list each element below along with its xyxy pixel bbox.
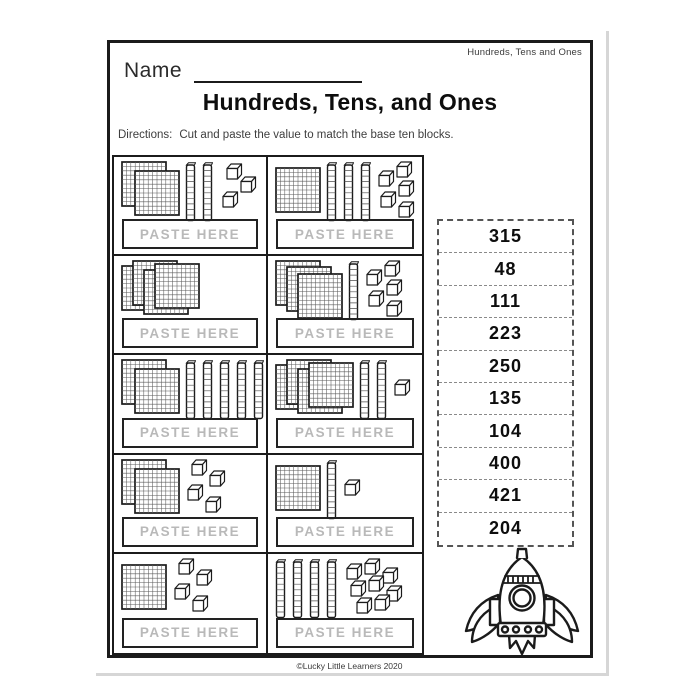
rocket-icon (448, 545, 596, 657)
ones-group (392, 359, 411, 419)
paste-here-box[interactable]: PASTE HERE (122, 618, 258, 648)
rocket-rivet (513, 627, 519, 633)
hundreds-group (121, 558, 167, 618)
base-ten-blocks (121, 459, 264, 521)
ten-rod-icon (326, 460, 337, 520)
hundreds-group (275, 359, 354, 419)
hundred-flat-icon (275, 465, 321, 511)
one-cube-icon (222, 191, 239, 208)
hundreds-group (121, 161, 180, 221)
block-cell: PASTE HERE (268, 256, 422, 355)
one-cube-icon (378, 170, 395, 187)
ones-group (172, 558, 213, 618)
paste-here-box[interactable]: PASTE HERE (276, 517, 414, 547)
ten-rod-icon (292, 559, 303, 619)
one-cube-icon (178, 558, 195, 575)
one-cube-icon (192, 595, 209, 612)
paste-here-label: PASTE HERE (140, 524, 240, 539)
rocket-window-inner (514, 590, 531, 607)
rocket-rivet (502, 627, 508, 633)
ten-rod-icon (236, 360, 247, 420)
ones-group (364, 260, 403, 320)
tens-group (359, 359, 387, 420)
paste-here-label: PASTE HERE (140, 227, 240, 242)
hundred-flat-icon (308, 362, 354, 408)
page-title: Hundreds, Tens, and Ones (110, 89, 590, 116)
rocket-flame (509, 635, 535, 654)
paste-here-box[interactable]: PASTE HERE (122, 318, 258, 348)
one-cube-icon (386, 300, 403, 317)
ten-rod-icon (359, 360, 370, 420)
ten-rod-icon (219, 360, 230, 420)
paste-here-box[interactable]: PASTE HERE (276, 219, 414, 249)
base-ten-blocks (275, 558, 420, 620)
paste-here-box[interactable]: PASTE HERE (276, 618, 414, 648)
one-cube-icon (187, 484, 204, 501)
tens-group (185, 359, 264, 420)
directions-label: Directions: (118, 129, 172, 141)
directions: Directions:Cut and paste the value to ma… (118, 129, 454, 141)
hundred-flat-icon (134, 468, 180, 514)
block-cell: PASTE HERE (114, 554, 268, 653)
paste-here-label: PASTE HERE (295, 326, 395, 341)
one-cube-icon (356, 597, 373, 614)
block-cell: PASTE HERE (268, 355, 422, 454)
paste-here-label: PASTE HERE (295, 625, 395, 640)
answer-slip[interactable]: 104 (439, 415, 572, 447)
one-cube-icon (384, 260, 401, 277)
ten-rod-icon (309, 559, 320, 619)
one-cube-icon (344, 479, 361, 496)
worksheet-page: Hundreds, Tens and Ones Name Hundreds, T… (93, 28, 606, 673)
answer-slip[interactable]: 250 (439, 351, 572, 383)
hundreds-group (275, 260, 343, 320)
one-cube-icon (380, 191, 397, 208)
one-cube-icon (205, 496, 222, 513)
hundred-flat-icon (134, 368, 180, 414)
name-label: Name (124, 59, 182, 83)
one-cube-icon (174, 583, 191, 600)
one-cube-icon (364, 558, 381, 575)
one-cube-icon (240, 176, 257, 193)
hundreds-group (275, 459, 321, 519)
block-cell: PASTE HERE (268, 455, 422, 554)
ones-group (342, 558, 403, 618)
one-cube-icon (366, 269, 383, 286)
paste-here-box[interactable]: PASTE HERE (122, 219, 258, 249)
rocket-tip (517, 549, 527, 558)
base-ten-blocks (121, 161, 264, 223)
hundred-flat-icon (275, 167, 321, 213)
hundred-flat-icon (134, 170, 180, 216)
ten-rod-icon (275, 559, 286, 619)
paste-here-label: PASTE HERE (295, 425, 395, 440)
base-ten-blocks (121, 260, 264, 322)
ten-rod-icon (348, 261, 359, 321)
paste-here-box[interactable]: PASTE HERE (276, 418, 414, 448)
answer-slip[interactable]: 421 (439, 480, 572, 512)
hundred-flat-icon (121, 564, 167, 610)
hundred-flat-icon (297, 273, 343, 319)
block-cell: PASTE HERE (114, 455, 268, 554)
copyright: ©Lucky Little Learners 2020 (93, 661, 606, 671)
ten-rod-icon (202, 360, 213, 420)
paste-here-label: PASTE HERE (295, 227, 395, 242)
one-cube-icon (368, 575, 385, 592)
one-cube-icon (394, 379, 411, 396)
tens-group (326, 161, 371, 222)
hundred-flat-icon (154, 263, 200, 309)
ten-rod-icon (185, 360, 196, 420)
tens-group (348, 260, 359, 321)
base-ten-blocks (275, 459, 420, 521)
one-cube-icon (386, 279, 403, 296)
hundreds-group (121, 459, 180, 519)
answer-slip[interactable]: 223 (439, 318, 572, 350)
one-cube-icon (346, 563, 363, 580)
directions-text: Cut and paste the value to match the bas… (179, 129, 453, 141)
name-row: Name (124, 59, 362, 83)
answer-slip[interactable]: 111 (439, 286, 572, 318)
base-ten-blocks (121, 558, 264, 620)
answer-slip[interactable]: 48 (439, 253, 572, 285)
block-cell: PASTE HERE (268, 157, 422, 256)
answer-column: 31548111223250135104400421204 (437, 219, 574, 547)
answer-slip[interactable]: 315 (439, 221, 572, 253)
paste-here-label: PASTE HERE (140, 625, 240, 640)
ten-rod-icon (253, 360, 264, 420)
ten-rod-icon (326, 559, 337, 619)
hundreds-group (121, 359, 180, 419)
rocket-rivet (525, 627, 531, 633)
base-ten-blocks (275, 161, 420, 223)
one-cube-icon (368, 290, 385, 307)
base-ten-blocks (121, 359, 264, 421)
hundreds-group (121, 260, 200, 320)
name-input-line[interactable] (194, 61, 362, 83)
page-frame: Hundreds, Tens and Ones Name Hundreds, T… (107, 40, 593, 658)
ones-group (342, 459, 361, 519)
ten-rod-icon (185, 162, 196, 222)
paste-here-label: PASTE HERE (140, 425, 240, 440)
tens-group (326, 459, 337, 520)
blocks-grid: PASTE HERE PASTE HERE PASTE HERE (112, 155, 424, 655)
tens-group (275, 558, 337, 619)
worksheet-canvas: Hundreds, Tens and Ones Name Hundreds, T… (0, 0, 700, 700)
paste-here-box[interactable]: PASTE HERE (122, 418, 258, 448)
page-header-label: Hundreds, Tens and Ones (467, 47, 582, 58)
ten-rod-icon (360, 162, 371, 222)
answer-slip[interactable]: 204 (439, 513, 572, 545)
one-cube-icon (398, 201, 415, 218)
paste-here-label: PASTE HERE (140, 326, 240, 341)
answer-slip[interactable]: 400 (439, 448, 572, 480)
one-cube-icon (196, 569, 213, 586)
one-cube-icon (350, 580, 367, 597)
rocket-rivet (536, 627, 542, 633)
tens-group (185, 161, 213, 222)
ones-group (376, 161, 415, 221)
one-cube-icon (209, 470, 226, 487)
answer-slip[interactable]: 135 (439, 383, 572, 415)
ten-rod-icon (202, 162, 213, 222)
block-cell: PASTE HERE (114, 157, 268, 256)
one-cube-icon (191, 459, 208, 476)
base-ten-blocks (275, 260, 420, 322)
ten-rod-icon (343, 162, 354, 222)
paste-here-label: PASTE HERE (295, 524, 395, 539)
ten-rod-icon (326, 162, 337, 222)
hundreds-group (275, 161, 321, 221)
ones-group (218, 161, 257, 221)
one-cube-icon (374, 594, 391, 611)
one-cube-icon (396, 161, 413, 178)
one-cube-icon (398, 180, 415, 197)
paste-here-box[interactable]: PASTE HERE (276, 318, 414, 348)
ten-rod-icon (376, 360, 387, 420)
ones-group (185, 459, 226, 519)
block-cell: PASTE HERE (114, 355, 268, 454)
paste-here-box[interactable]: PASTE HERE (122, 517, 258, 547)
block-cell: PASTE HERE (114, 256, 268, 355)
block-cell: PASTE HERE (268, 554, 422, 653)
base-ten-blocks (275, 359, 420, 421)
